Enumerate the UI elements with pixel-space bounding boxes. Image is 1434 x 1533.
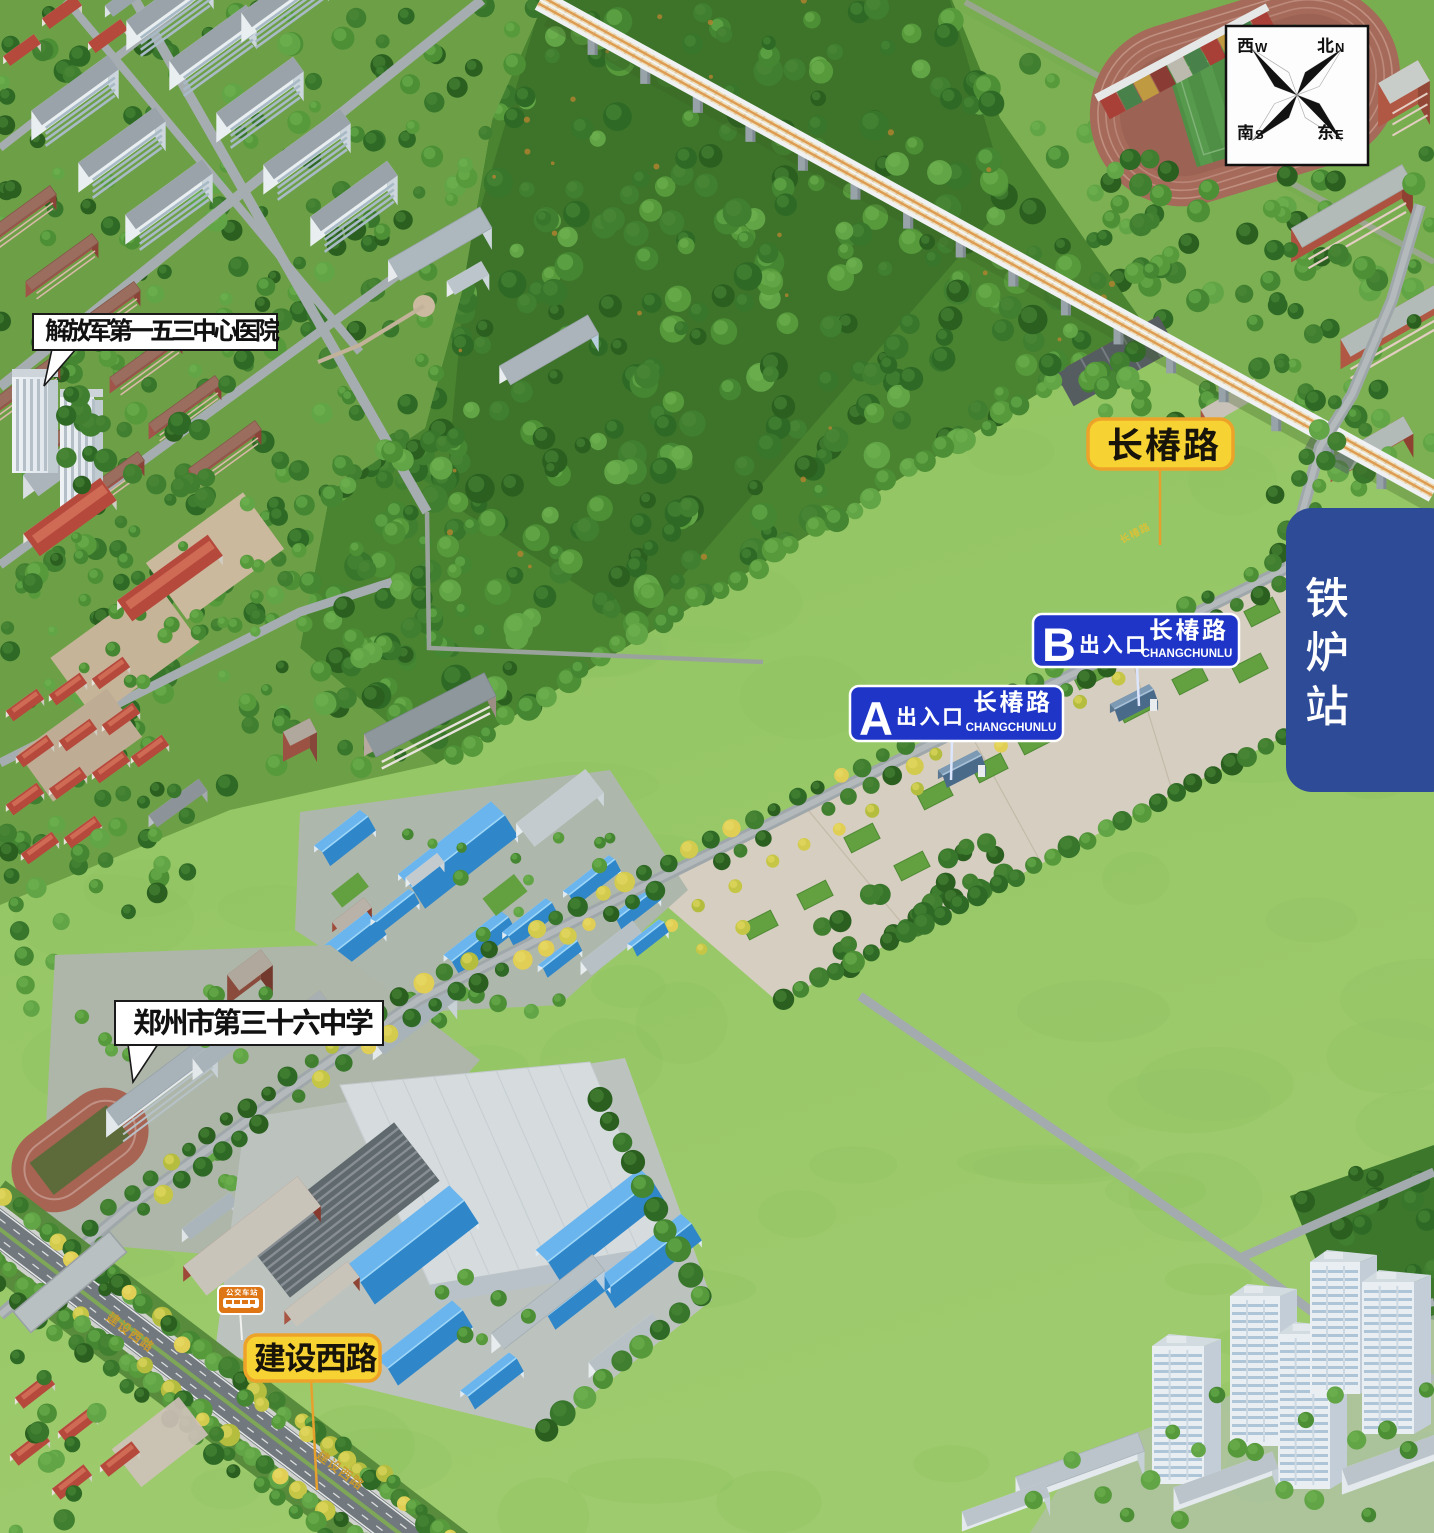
svg-text:B: B: [1042, 618, 1076, 671]
svg-text:N: N: [1335, 40, 1344, 55]
svg-text:W: W: [1255, 40, 1268, 55]
svg-text:CHANGCHUNLU: CHANGCHUNLU: [1142, 648, 1233, 660]
svg-text:CHANGCHUNLU: CHANGCHUNLU: [966, 722, 1057, 734]
svg-text:E: E: [1335, 127, 1344, 142]
svg-text:S: S: [1255, 127, 1264, 142]
svg-text:A: A: [859, 692, 893, 745]
